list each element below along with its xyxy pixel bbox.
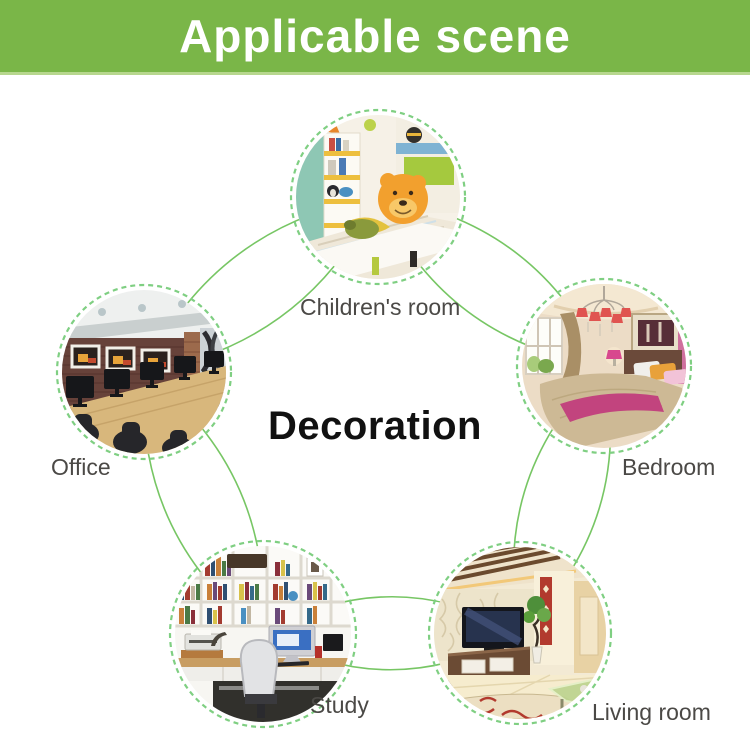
node-label-bedroom: Bedroom [622,455,715,480]
children-room-photo [296,115,460,279]
page: Applicable scene [0,0,750,750]
node-label-office: Office [51,455,111,480]
page-title: Applicable scene [179,13,571,59]
node-label-children-room: Children's room [300,295,460,320]
center-label: Decoration [0,404,750,449]
node-label-study: Study [310,693,369,718]
node-children-room [291,110,465,284]
node-label-living-room: Living room [592,700,711,725]
header-banner: Applicable scene [0,0,750,75]
living-room-photo [434,545,606,719]
node-living-room [429,542,611,724]
